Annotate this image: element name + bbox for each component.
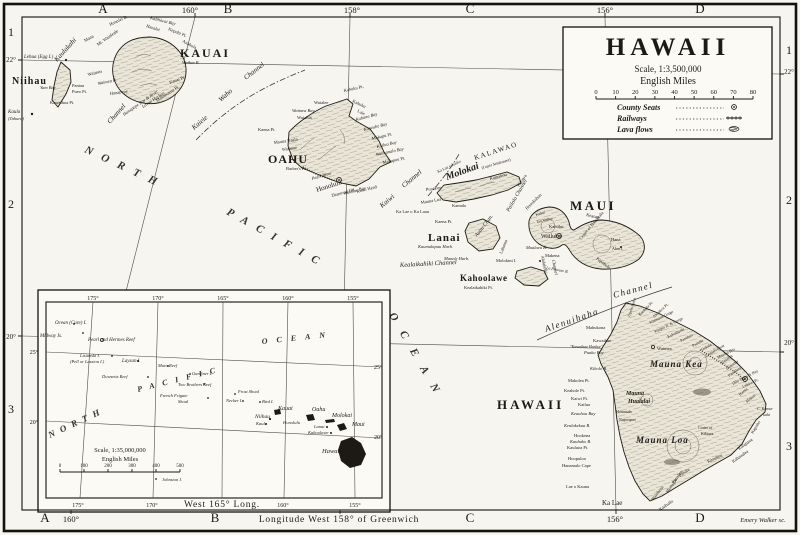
scalebar-tick: 0 (594, 89, 597, 96)
inset-place-label: Maro Reef (157, 363, 178, 368)
place-label: Crater of (698, 425, 713, 430)
place-label: HAWAII (497, 397, 564, 412)
place-label: Kahoolawe (460, 273, 508, 283)
inset-longitude-label: 155° (347, 295, 359, 302)
inset-place-label: Johnston I. (162, 477, 182, 482)
inset-place-label: Ocean (Cure) I. (55, 321, 87, 326)
inset-pacific-map: Ocean (Cure) I.Midway Is.Pearl and Herme… (30, 290, 390, 512)
inset-place-label: Midway Is. (39, 334, 62, 339)
place-label: Mauna Loa (635, 435, 689, 445)
place-label: Kaula (7, 110, 21, 115)
margin-top-label: A (98, 1, 108, 16)
place-label: Makolea Pt. (568, 378, 590, 383)
place-label: Pueo Pt. (72, 89, 87, 94)
inset-place-label: French Frigate (159, 393, 187, 398)
inset-place-label: Dowsetts Reef (101, 374, 128, 379)
scalebar-tick: 40 (671, 89, 678, 96)
place-label: Maalaea B. (525, 245, 547, 250)
place-label: Kaiwi Pt. (571, 396, 588, 401)
inset-place-label: Necker I. (225, 398, 243, 403)
inset-longitude-label: 170° (146, 502, 158, 509)
place-label: Paniau (72, 83, 85, 88)
place-label: Ka Lae (602, 499, 622, 507)
inset-place-label: Lanai (313, 424, 325, 429)
margin-top-label: 160° (182, 5, 198, 15)
scalebar-tick: 50 (691, 89, 698, 96)
margin-left-label: 2 (8, 197, 14, 211)
place-label: OAHU (268, 152, 308, 166)
place-label: Barber's Pt. (286, 166, 307, 171)
scalebar-tick: 200 (104, 464, 112, 469)
map-title: HAWAII (606, 34, 730, 61)
margin-bottom-label: A (40, 510, 50, 525)
inset-place-label: Kaula (255, 421, 268, 426)
place-label: Kealakekua B. (563, 423, 590, 428)
place-label: Kamalo (452, 203, 467, 208)
place-label: KAUAI (180, 46, 230, 60)
scalebar-tick: 70 (730, 89, 737, 96)
inset-place-label: Laysan I. (121, 359, 141, 364)
place-label: Mahukona (586, 325, 605, 330)
scalebar-tick: 400 (152, 464, 160, 469)
inset-place-label: Pearl and Hermes Reef (87, 338, 135, 343)
place-label: Kailua (578, 402, 590, 407)
place-label: Hana (611, 237, 621, 242)
inset-latitude-label: 20° (374, 434, 383, 441)
legend-label-rail: Railways (616, 114, 647, 123)
place-label: Kawaihoa Pt. (50, 100, 74, 105)
legend-label-county: County Seats (617, 103, 660, 112)
inset-longitude-label: 165° (217, 295, 229, 302)
margin-right-label: 1 (786, 43, 792, 57)
place-label: Wailua R. (182, 60, 200, 65)
inset-place-label: Frost Shoal (237, 389, 260, 394)
scalebar-tick: 10 (612, 89, 619, 96)
map-scale-units: English Miles (640, 76, 696, 87)
inset-latitude-label: 20° (30, 419, 39, 426)
scalebar-tick: 60 (711, 89, 718, 96)
place-label: Makena (545, 253, 560, 258)
place-label: Hoopuloa (568, 456, 586, 461)
map-scale-text: Scale, 1:3,500,000 (635, 64, 702, 74)
inset-place-label: Niihau (254, 414, 270, 420)
inset-place-label: Kauai (277, 406, 293, 412)
scalebar-tick: 20 (632, 89, 639, 96)
scalebar-tick: 30 (652, 89, 659, 96)
place-label: Honuaula (616, 409, 632, 414)
margin-bottom-label: 160° (63, 514, 79, 524)
place-label: Waialua (297, 115, 312, 120)
inset-latitude-label: 25° (30, 349, 39, 356)
margin-top-label: 156° (597, 5, 613, 15)
place-label: Napoopoo (619, 417, 636, 422)
hawaii-map: NiihauLehua (Egg I.)Yam BayPaniauPueo Pt… (0, 0, 800, 535)
lava-flow-patch (693, 389, 711, 396)
place-label: Hookena (574, 433, 590, 438)
place-label: Lanai (428, 232, 461, 244)
inset-longitude-label: 175° (87, 295, 99, 302)
place-label: Mauna Kea (649, 359, 703, 369)
margin-right-label: 22° (784, 68, 794, 76)
margin-top-label: 158° (344, 5, 360, 15)
margin-bottom-label: Longitude West 158° of Greenwich (259, 514, 419, 525)
place-label: Waialee (314, 100, 328, 105)
inset-scale-text: Scale, 1:35,000,000 (94, 447, 146, 454)
inset-place-label: (Pell or Lassion I.) (70, 359, 105, 364)
margin-bottom-label: C (466, 510, 475, 525)
margin-top-label: B (224, 1, 233, 16)
place-label: Keahole Pt. (564, 388, 585, 393)
place-label: C. Kumu- (757, 406, 774, 411)
margin-right-label: 20° (784, 339, 794, 347)
margin-bottom-label: B (211, 510, 220, 525)
place-label: Molokini I. (496, 258, 517, 263)
inset-scale-units: English Miles (102, 456, 139, 463)
place-label: Kauluoa Pt. (567, 445, 588, 450)
place-label: Keauhou Bay (570, 411, 595, 416)
title-legend-box: HAWAII Scale, 1:3,500,000 English Miles … (563, 27, 772, 139)
place-label: kahi (763, 412, 771, 417)
scalebar-tick: 500 (176, 464, 184, 469)
place-label: Kauhako B. (569, 439, 591, 444)
margin-right-label: 3 (786, 439, 792, 453)
inset-place-label: Bird I. (262, 399, 274, 404)
inset-longitude-label: 175° (72, 502, 84, 509)
map-page: NiihauLehua (Egg I.)Yam BayPaniauPueo Pt… (0, 0, 800, 535)
margin-bottom-label: Emery Walker sc. (739, 517, 786, 524)
inset-place-label: Maui (351, 422, 365, 428)
margin-left-label: 22° (6, 56, 16, 64)
margin-left-label: 1 (8, 25, 14, 39)
place-label: Kaumalapau Harb. (417, 244, 453, 249)
place-label: Kiholo B. (589, 366, 607, 371)
margin-top-label: D (695, 1, 704, 16)
scalebar-tick: 80 (750, 89, 757, 96)
place-label: Kawaihae (593, 338, 611, 343)
place-label: Ka Lae o Ka Laau (396, 209, 430, 214)
place-label: Waimea Bay (292, 108, 314, 113)
margin-left-label: 3 (8, 402, 14, 416)
inset-place-label: Molokai (331, 413, 352, 419)
place-label: Kaena Pt. (258, 127, 276, 132)
margin-left-label: 20° (6, 333, 16, 341)
inset-place-label: Lisianski I. (79, 353, 100, 358)
place-label: Hualalai (627, 399, 650, 405)
legend-label-lava: Lava flows (616, 125, 653, 134)
inset-longitude-label: 160° (277, 502, 289, 509)
inset-longitude-label: 155° (349, 502, 361, 509)
place-label: Puako Bay (583, 350, 604, 355)
place-label: Mauna (625, 391, 644, 397)
place-label: Kaena Pt. (435, 219, 453, 224)
margin-top-label: C (466, 1, 475, 16)
place-label: "Kawaihae Harbor" (570, 344, 603, 349)
place-label: Alau I. (612, 246, 623, 251)
margin-right-label: 2 (786, 193, 792, 207)
scalebar-tick: 100 (80, 464, 88, 469)
place-label: Lehua (Egg I.) (23, 55, 54, 60)
place-label: Yam Bay (40, 85, 56, 90)
inset-place-label: Oahu (312, 407, 325, 413)
inset-longitude-label: West 165° Long. (184, 499, 260, 510)
inset-latitude-label: 25° (374, 364, 383, 371)
place-label: Hanamalo Cape (562, 463, 591, 468)
place-label: Lae o Kauna (566, 484, 589, 489)
margin-bottom-label: D (695, 510, 704, 525)
place-label: Wailuku (541, 234, 561, 240)
scalebar-tick: 300 (128, 464, 136, 469)
inset-place-label: Honolulu (282, 420, 301, 425)
inset-longitude-label: 170° (152, 295, 164, 302)
inset-longitude-label: 160° (282, 295, 294, 302)
place-label: Kahului (549, 224, 564, 229)
place-label: Kilauea (701, 431, 714, 436)
lava-flow-patch (664, 459, 680, 465)
place-label: MAUI (570, 198, 616, 213)
place-label: Waimea (657, 346, 672, 351)
inset-place-label: Hawaii (321, 448, 341, 455)
inset-place-label: Shoal (178, 399, 189, 404)
place-label: Kealaikahiki Pt. (464, 285, 493, 290)
margin-bottom-label: 156° (607, 514, 623, 524)
inset-place-label: Kahoolawe (307, 430, 329, 435)
